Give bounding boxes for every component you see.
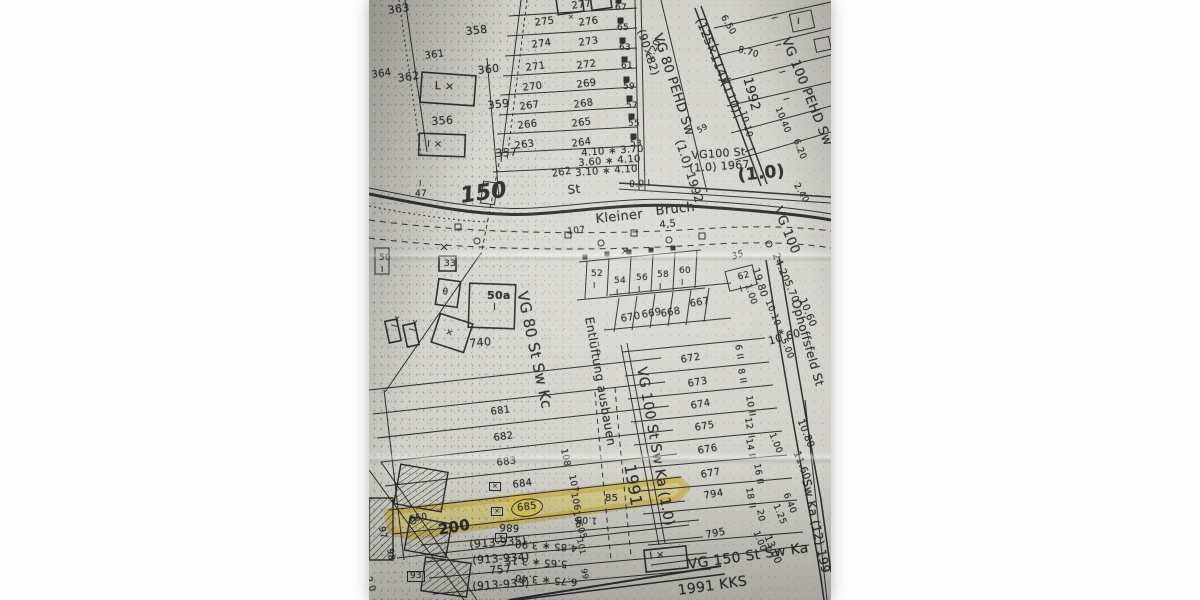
map-label: I [638,286,641,294]
map-label: 10.10 [737,110,753,139]
left-margin [0,0,369,600]
map-label: I [593,282,596,290]
map-label: 670 [620,312,641,325]
map-label: 12 II [742,417,755,439]
map-label: 677 [700,468,721,481]
map-label: 59 [623,83,635,92]
map-label: 5.65 ∗ 3.15 [505,554,568,568]
map-label: θ [442,288,449,298]
map-label: 356 [431,114,454,127]
map-label: 270 [522,81,543,94]
screenshot-stage: 363358361360364362L ×359356I ×357I47150S… [0,0,1200,600]
map-label: 58 [657,271,669,280]
map-label: 673 [687,377,708,390]
map-label: 1.00 [767,432,783,455]
map-label: 262 [551,167,572,180]
map-label: 1.05 [576,514,598,524]
map-label: 57 [626,102,638,111]
map-photo: 363358361360364362L ×359356I ×357I47150S… [369,0,831,600]
map-label: 1992 [740,76,761,112]
map-label: Sw Ka (12) 199 [800,478,831,574]
map-label: I × [409,318,420,332]
map-label: 0.0 I [629,180,651,190]
map-label: × [444,328,454,339]
map-label: 61 [621,62,633,71]
map-label: I [616,289,619,297]
map-label: I [781,97,789,102]
map-label: 267 [519,100,540,113]
map-label: I [493,303,496,313]
map-label: 47 [415,190,427,199]
map-label: 681 [490,405,511,418]
map-label: I [769,16,777,21]
map-label: I × [427,140,442,150]
map-label: 63 [619,44,631,53]
map-label: 271 [525,61,546,74]
map-label: 6.20 [791,138,807,161]
map-label: 59 [696,123,709,135]
map-label: (1.0) [737,163,786,185]
map-label: 56 [636,274,648,283]
map-label: 52 [591,270,603,279]
map-label: 8.70 [737,46,760,60]
map-label: × [489,482,501,491]
map-label: 3.10 ∗ 4.10 [575,165,638,179]
map-label: 269 [576,78,597,91]
map-label: Kleiner [595,208,644,226]
map-label: 10.60 [767,327,802,346]
map-label: 6 II [732,344,743,360]
map-label: 93 [407,571,425,582]
map-label: 98 [384,548,395,561]
map-label: 1991 [621,463,644,507]
map-label: Entlüftung ausbauen [583,316,618,447]
map-label: 85 [605,494,618,504]
map-label: 55 [628,120,640,129]
map-label: 263 [514,139,535,152]
map-label: I × [649,550,665,562]
map-label: 358 [465,24,488,37]
map-label: × [491,507,503,516]
map-label: × [568,14,574,21]
map-label: 265 [571,117,592,130]
map-label: 33 [444,260,456,269]
map-label: 16 II [751,463,764,485]
map-label: 272 [576,59,597,72]
map-label: 24.20 [770,252,791,284]
map-label: 1991 KKS [677,574,748,598]
map-label: 50 [379,254,391,263]
map-label: 676 [697,444,718,457]
map-label: 686 [499,521,519,532]
map-label: 8 II [735,368,746,384]
map-label: 650 [409,513,428,525]
map-label: 10 II [743,395,756,417]
map-label: 65 [617,24,629,33]
map-label: 97 [376,526,387,539]
map-label: 273 [578,36,599,49]
map-label: 685 [510,497,544,519]
map-label: 35 [731,250,745,263]
map-label: VG 100 [771,205,802,256]
right-margin [831,0,1200,600]
map-label: 2.0 [369,576,376,593]
map-label: 11.60 [791,450,812,482]
map-label: 266 [517,119,538,132]
map-label: I [659,283,662,291]
map-label: 682 [493,431,514,444]
map-label: 795 [705,528,726,541]
map-label: 683 [496,456,517,469]
map-label: 18 II [743,487,756,509]
map-label: 6.50 [718,14,736,37]
map-label: 50a [487,290,511,301]
map-label: 106 [568,492,581,512]
map-label: 740 [469,336,492,349]
map-label: 277 [571,0,592,12]
map-label: 14 II [743,438,756,460]
map-label: 667 [689,297,710,310]
map-label: VG 150 St Sw Ka [687,541,809,572]
map-labels: 363358361360364362L ×359356I ×357I47150S… [369,0,831,600]
map-label: 675 [694,421,715,434]
map-label: 363 [387,2,410,16]
map-label: 2.40 [791,182,809,205]
map-label: 275 [534,16,555,29]
map-label: 67 [615,4,627,13]
map-label: 274 [531,38,552,51]
map-label: 362 [397,70,420,84]
map-label: 200 [437,517,471,537]
map-label: 757 [489,563,512,576]
map-label: 364 [371,68,392,81]
map-label: 361 [424,49,445,62]
map-label: L × [434,80,454,92]
map-label: 54 [614,277,626,286]
map-label: 359 [487,98,510,111]
map-label: 62 [737,271,751,283]
map-label: VG 80 St Sw Kc [514,290,554,410]
map-label: I [797,18,800,27]
map-label: 99 [579,568,589,580]
map-label: 268 [573,98,594,111]
map-label: 276 [578,16,599,29]
map-label: 108 [558,448,571,468]
map-label: 10.80 [795,418,816,450]
map-label: 674 [690,399,711,412]
map-label: 794 [703,489,724,502]
map-label: I [777,70,785,75]
map-label: I [381,266,384,274]
map-label: 107 [566,474,579,494]
map-label: St [567,183,581,196]
map-label: 669 [641,308,662,321]
map-label: 4,5 [659,219,677,231]
map-label: 150 [459,179,508,207]
map-label: 10.40 [773,106,792,135]
map-label: 60 [679,267,691,276]
map-label: 107 [567,226,586,237]
map-label: 360 [477,63,500,76]
map-label: I [419,180,422,188]
map-label: 20 [754,509,765,522]
map-label: VG 80 PEHD Sw [651,32,696,137]
map-label: Bruch [655,201,696,218]
map-label: 684 [512,478,533,491]
map-label: 668 [660,307,681,320]
map-label: 672 [680,353,701,366]
map-label: I × [391,314,402,328]
map-label: I [681,279,684,287]
